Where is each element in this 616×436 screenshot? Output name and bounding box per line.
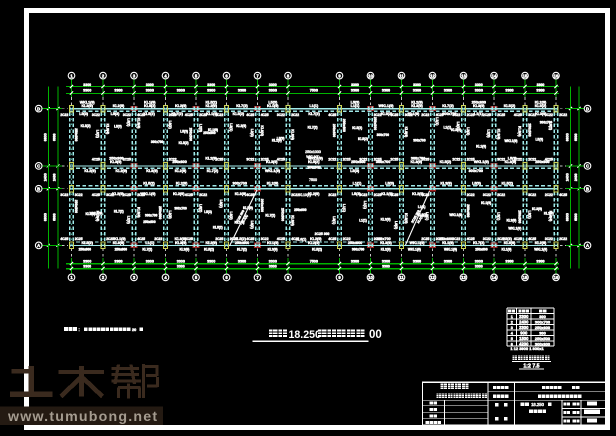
svg-text:6600: 6600 [53, 133, 57, 141]
svg-text:WKL1(9): WKL1(9) [474, 160, 490, 164]
svg-text:4C25: 4C25 [514, 237, 522, 241]
svg-text:3300: 3300 [177, 89, 185, 93]
svg-text:KL5(2): KL5(2) [440, 160, 452, 164]
svg-text:200x400: 200x400 [260, 199, 264, 212]
svg-text:4C25: 4C25 [60, 237, 68, 241]
svg-text:4C25: 4C25 [545, 157, 553, 161]
svg-text:250x500: 250x500 [528, 123, 532, 136]
svg-text:4C25: 4C25 [559, 193, 567, 197]
svg-text:L6(2): L6(2) [219, 200, 223, 208]
svg-text:KL5(2): KL5(2) [81, 241, 93, 245]
svg-text:3300: 3300 [519, 314, 529, 319]
svg-text:KL2(9): KL2(9) [116, 169, 128, 173]
svg-text:300x700: 300x700 [233, 181, 247, 185]
svg-text:3300: 3300 [269, 265, 277, 269]
svg-text:KL1(9): KL1(9) [144, 100, 156, 104]
svg-text:KL2(9): KL2(9) [535, 100, 547, 104]
svg-text:KL2(9): KL2(9) [267, 181, 279, 185]
svg-text:3300: 3300 [207, 260, 215, 264]
svg-text:KL5(2): KL5(2) [213, 226, 223, 230]
svg-text:2C22: 2C22 [215, 113, 223, 117]
svg-text:4C25: 4C25 [185, 113, 193, 117]
svg-text:300x700: 300x700 [413, 139, 426, 143]
svg-text:11: 11 [399, 73, 404, 78]
svg-text:L6(2): L6(2) [229, 212, 233, 220]
svg-text:2C22: 2C22 [497, 237, 505, 241]
svg-text:12: 12 [430, 73, 435, 78]
svg-text:WKL3(1): WKL3(1) [306, 155, 319, 159]
svg-text:L5(3): L5(3) [204, 210, 212, 214]
svg-text:2C25: 2C25 [390, 157, 398, 161]
svg-text:300x700: 300x700 [151, 140, 164, 144]
svg-text:300x600: 300x600 [307, 166, 320, 170]
svg-text:A: A [586, 243, 589, 248]
svg-text:300: 300 [539, 314, 546, 319]
svg-text:18.250: 18.250 [289, 329, 322, 341]
svg-text:C: C [586, 164, 589, 169]
svg-text:KL3(9): KL3(9) [235, 192, 247, 196]
svg-text:L5(3): L5(3) [351, 100, 361, 104]
svg-text:KL2(9): KL2(9) [544, 212, 554, 216]
svg-text:1 12 3900 1 800x1: 1 12 3900 1 800x1 [510, 346, 544, 351]
svg-text:KL2(9): KL2(9) [205, 104, 217, 108]
svg-text:4C25: 4C25 [246, 237, 254, 241]
svg-text:KL7(2): KL7(2) [142, 248, 152, 252]
svg-text:KL1(9): KL1(9) [476, 145, 486, 149]
svg-text:L2(3): L2(3) [250, 129, 254, 137]
svg-text:250x600: 250x600 [115, 248, 128, 252]
svg-text:3C22: 3C22 [483, 193, 491, 197]
svg-text:250x500: 250x500 [74, 200, 78, 213]
svg-text:4C25: 4C25 [185, 193, 193, 197]
svg-text:00: 00 [369, 329, 382, 341]
svg-text:KL1(9): KL1(9) [442, 241, 454, 245]
svg-text:KL5(2): KL5(2) [205, 100, 217, 104]
svg-text:2C25: 2C25 [483, 113, 491, 117]
svg-text:2C22: 2C22 [514, 157, 522, 161]
svg-text:L1(1): L1(1) [145, 241, 155, 245]
svg-text:250x500: 250x500 [373, 117, 377, 130]
svg-text:D: D [586, 106, 589, 111]
svg-text:3300: 3300 [505, 89, 513, 93]
svg-text:WKL1(9): WKL1(9) [80, 100, 96, 104]
svg-text:3300: 3300 [413, 260, 421, 264]
svg-text:3300: 3300 [505, 260, 513, 264]
svg-text:2C22: 2C22 [559, 113, 567, 117]
svg-text:A: A [37, 243, 40, 248]
svg-text:KL2(9): KL2(9) [272, 139, 282, 143]
svg-text:3300: 3300 [351, 83, 359, 87]
svg-text:L1(1): L1(1) [353, 181, 363, 185]
svg-text:300x700: 300x700 [469, 169, 483, 173]
svg-text:900: 900 [520, 331, 528, 336]
svg-text:15: 15 [523, 73, 528, 78]
svg-text:WKL1(9): WKL1(9) [379, 104, 395, 108]
svg-text:250x600: 250x600 [143, 220, 156, 224]
svg-text:KL5(2): KL5(2) [204, 248, 214, 252]
svg-text:3C22: 3C22 [92, 113, 100, 117]
svg-text:C: C [37, 164, 40, 169]
svg-text:250x600: 250x600 [203, 131, 216, 135]
svg-text:3300: 3300 [475, 89, 483, 93]
svg-text:3300: 3300 [519, 325, 529, 330]
svg-text:WKL1(9): WKL1(9) [265, 169, 281, 173]
svg-text:4C25: 4C25 [246, 113, 254, 117]
svg-text:3300: 3300 [269, 89, 277, 93]
svg-text:3C22: 3C22 [60, 193, 68, 197]
svg-text:4C25: 4C25 [137, 237, 145, 241]
svg-text:L1(1): L1(1) [363, 201, 367, 209]
svg-text:3C22: 3C22 [528, 113, 536, 117]
svg-text:250x500: 250x500 [281, 208, 285, 221]
svg-text:300x700: 300x700 [540, 121, 553, 125]
svg-text:L6(2): L6(2) [199, 204, 203, 212]
svg-text:KL2(9): KL2(9) [411, 100, 423, 104]
svg-text:14: 14 [492, 73, 497, 78]
svg-text:3300: 3300 [413, 83, 421, 87]
svg-text:2C22: 2C22 [60, 113, 68, 117]
svg-text:6600: 6600 [566, 133, 570, 141]
svg-text:6900: 6900 [566, 213, 570, 221]
svg-text:4C25: 4C25 [246, 193, 254, 197]
svg-text:KL7(2): KL7(2) [236, 104, 248, 108]
svg-text:3C22: 3C22 [359, 157, 367, 161]
svg-text:KL8(4): KL8(4) [291, 129, 295, 140]
svg-text:3C22: 3C22 [497, 157, 505, 161]
svg-text:L6(2): L6(2) [96, 130, 100, 138]
svg-text:300: 300 [539, 331, 546, 336]
svg-text:4C25: 4C25 [421, 193, 429, 197]
svg-text:250x500: 250x500 [518, 210, 522, 223]
svg-text:2C22: 2C22 [497, 193, 505, 197]
svg-text:3300: 3300 [382, 265, 390, 269]
svg-text:KL5(2): KL5(2) [504, 104, 516, 108]
svg-text:16: 16 [554, 275, 559, 280]
svg-text:2C25: 2C25 [215, 237, 223, 241]
svg-text:2C25: 2C25 [421, 157, 429, 161]
svg-text:3C22: 3C22 [483, 237, 491, 241]
svg-text:3C22: 3C22 [545, 237, 553, 241]
svg-text:2C22: 2C22 [199, 193, 207, 197]
svg-text:KL9(4): KL9(4) [137, 207, 141, 218]
svg-text:KL3(9): KL3(9) [506, 219, 516, 223]
svg-text:3C22: 3C22 [106, 193, 114, 197]
svg-text:2: 2 [511, 321, 513, 325]
svg-text:L5(3): L5(3) [385, 181, 395, 185]
svg-text:250x600: 250x600 [348, 241, 362, 245]
svg-text:KL3(9): KL3(9) [113, 241, 125, 245]
svg-text:18.250: 18.250 [531, 402, 544, 407]
svg-text:3C22: 3C22 [405, 113, 413, 117]
svg-text:3300: 3300 [537, 83, 545, 87]
svg-text:3C22: 3C22 [261, 237, 269, 241]
svg-text:KL3(9): KL3(9) [175, 241, 187, 245]
svg-text:2400: 2400 [574, 173, 578, 181]
svg-text:2C22: 2C22 [374, 237, 382, 241]
svg-text:KL3(9): KL3(9) [532, 207, 542, 211]
svg-text:2C25: 2C25 [199, 113, 207, 117]
svg-text:250x600: 250x600 [475, 248, 488, 252]
svg-text:2C25: 2C25 [169, 113, 177, 117]
svg-text:2400: 2400 [53, 173, 57, 181]
svg-text:KL2(9): KL2(9) [84, 169, 96, 173]
svg-text:3C22: 3C22 [452, 113, 460, 117]
svg-text:3300: 3300 [83, 260, 91, 264]
svg-text:2C25: 2C25 [374, 193, 382, 197]
svg-text:L5(3): L5(3) [535, 137, 543, 141]
svg-text:KL5(2): KL5(2) [417, 213, 427, 217]
svg-text:L1(1): L1(1) [309, 104, 319, 108]
svg-text:3300: 3300 [114, 89, 122, 93]
svg-text:4C25: 4C25 [390, 193, 398, 197]
svg-text:KL5(2): KL5(2) [81, 124, 91, 128]
svg-text:KL7(2): KL7(2) [265, 214, 275, 218]
svg-text:14: 14 [492, 275, 497, 280]
svg-text:300x700: 300x700 [377, 133, 390, 137]
svg-text:KL9(4): KL9(4) [106, 124, 110, 135]
svg-text:KL5(2): KL5(2) [233, 112, 245, 116]
svg-text:L1(1): L1(1) [342, 204, 346, 212]
svg-text:4C25: 4C25 [261, 113, 269, 117]
svg-text:3300: 3300 [207, 89, 215, 93]
svg-text:2C22: 2C22 [545, 193, 553, 197]
svg-text:KL1(9): KL1(9) [481, 201, 491, 205]
svg-text:3300: 3300 [351, 260, 359, 264]
svg-text:WKL1(9): WKL1(9) [505, 139, 518, 143]
svg-text:L1(1): L1(1) [418, 205, 426, 209]
svg-text:3C22: 3C22 [545, 113, 553, 117]
svg-text:KL7(2): KL7(2) [207, 169, 219, 173]
svg-text:L6(2): L6(2) [168, 121, 172, 129]
svg-text:3300: 3300 [83, 89, 91, 93]
svg-text:15: 15 [523, 275, 528, 280]
svg-text:250x600: 250x600 [109, 156, 123, 160]
svg-text:2C25: 2C25 [374, 157, 382, 161]
svg-text:KL1(9): KL1(9) [267, 104, 279, 108]
svg-text:12: 12 [430, 275, 435, 280]
svg-text:2400: 2400 [566, 173, 570, 181]
svg-text:2C22: 2C22 [328, 193, 336, 197]
svg-text:1:2 7.5: 1:2 7.5 [523, 363, 539, 369]
svg-text:KL3(9): KL3(9) [380, 241, 392, 245]
svg-text:KL7(2): KL7(2) [308, 112, 320, 116]
svg-text:KL7(2): KL7(2) [308, 126, 318, 130]
svg-text:3300: 3300 [177, 260, 185, 264]
svg-text:300x700: 300x700 [174, 206, 187, 210]
svg-text:KL2(9): KL2(9) [310, 237, 322, 241]
svg-text:7500: 7500 [309, 178, 317, 182]
svg-text:L3(1): L3(1) [229, 123, 233, 131]
svg-text:KL2(9): KL2(9) [113, 104, 125, 108]
svg-text:3300: 3300 [475, 83, 483, 87]
svg-text:2C22: 2C22 [421, 113, 429, 117]
svg-text:7500: 7500 [310, 89, 318, 93]
svg-text:WKL1(9): WKL1(9) [408, 248, 421, 252]
svg-text:4C25: 4C25 [92, 193, 100, 197]
svg-text:3: 3 [511, 326, 513, 330]
svg-text:L3(1): L3(1) [332, 216, 336, 224]
svg-text:20: 20 [132, 328, 136, 332]
svg-text:KL1(9): KL1(9) [267, 241, 279, 245]
svg-text:2C25: 2C25 [123, 193, 131, 197]
svg-text:KL5(2): KL5(2) [358, 137, 368, 141]
svg-text:2C25: 2C25 [123, 157, 131, 161]
svg-text:KL7(2): KL7(2) [237, 248, 247, 252]
svg-text:KL5(2): KL5(2) [144, 104, 156, 108]
svg-text:KL1(9): KL1(9) [502, 248, 512, 252]
svg-text:KL5(2): KL5(2) [179, 141, 189, 145]
svg-text:2C22: 2C22 [328, 157, 336, 161]
svg-text:D: D [37, 106, 40, 111]
svg-text:6900: 6900 [44, 213, 48, 221]
svg-text:KL3(9): KL3(9) [440, 181, 452, 185]
svg-text:3300: 3300 [146, 89, 154, 93]
svg-text:4C25: 4C25 [528, 237, 536, 241]
svg-text:3300: 3300 [382, 260, 390, 264]
svg-text:250x600: 250x600 [535, 325, 550, 330]
svg-text:3300: 3300 [146, 83, 154, 87]
svg-text:2C25: 2C25 [215, 157, 223, 161]
svg-text:2C22: 2C22 [436, 237, 444, 241]
svg-text:2C25: 2C25 [467, 113, 475, 117]
svg-text:2C22: 2C22 [291, 193, 299, 197]
svg-text:KL7(2): KL7(2) [473, 241, 485, 245]
svg-text:KL8(4): KL8(4) [404, 213, 408, 224]
svg-text:2C25: 2C25 [343, 157, 351, 161]
svg-text:2400: 2400 [44, 173, 48, 181]
svg-text:L6(2): L6(2) [127, 118, 131, 126]
svg-text:2C22: 2C22 [169, 157, 177, 161]
svg-text:2C25: 2C25 [421, 237, 429, 241]
svg-text:KL3(9): KL3(9) [411, 104, 423, 108]
svg-text:6900: 6900 [53, 213, 57, 221]
svg-text:3300: 3300 [269, 83, 277, 87]
svg-text:4C25: 4C25 [277, 237, 285, 241]
svg-text:3300: 3300 [444, 89, 452, 93]
svg-text:3300: 3300 [413, 89, 421, 93]
svg-text:KL5(2): KL5(2) [312, 248, 322, 252]
svg-text:4C25: 4C25 [92, 157, 100, 161]
svg-text:L5(3): L5(3) [111, 112, 121, 116]
svg-text:4C25: 4C25 [514, 113, 522, 117]
svg-text:KL1(9): KL1(9) [235, 220, 245, 224]
svg-text:KL7(2): KL7(2) [442, 104, 454, 108]
svg-text:300x700: 300x700 [145, 214, 158, 218]
svg-text:KL3(9): KL3(9) [81, 104, 93, 108]
svg-text:L5(3): L5(3) [268, 100, 278, 104]
svg-text:250x600: 250x600 [235, 241, 249, 245]
svg-text:WKL1(9): WKL1(9) [449, 213, 462, 217]
svg-text:10: 10 [368, 275, 373, 280]
svg-text:4C25: 4C25 [390, 113, 398, 117]
svg-text:6600: 6600 [574, 133, 578, 141]
svg-text:3C22: 3C22 [246, 157, 254, 161]
svg-text:4C25: 4C25 [185, 237, 193, 241]
svg-text:3C22: 3C22 [528, 193, 536, 197]
svg-text:3300: 3300 [177, 265, 185, 269]
svg-text:3300: 3300 [351, 89, 359, 93]
svg-text:B: B [586, 186, 589, 191]
svg-text:KL5(2): KL5(2) [535, 104, 547, 108]
svg-text:5: 5 [511, 337, 513, 341]
svg-text:4C25: 4C25 [137, 113, 145, 117]
svg-text:2C25: 2C25 [137, 193, 145, 197]
svg-text:KL8(4): KL8(4) [291, 215, 295, 226]
svg-text:3300: 3300 [475, 260, 483, 264]
svg-text:KL2(9): KL2(9) [308, 241, 320, 245]
svg-text:KL3(9): KL3(9) [504, 241, 516, 245]
svg-text:3C22: 3C22 [359, 193, 367, 197]
svg-text:KL3(9): KL3(9) [268, 248, 278, 252]
svg-text:3300: 3300 [83, 265, 91, 269]
svg-text:2C22: 2C22 [291, 113, 299, 117]
svg-text:KL2(9): KL2(9) [176, 181, 188, 185]
svg-text:4C25: 4C25 [467, 237, 475, 241]
svg-text:L6(2): L6(2) [394, 221, 398, 229]
svg-text:3C22: 3C22 [374, 113, 382, 117]
svg-text:KL5(2): KL5(2) [143, 181, 155, 185]
svg-text:2C22: 2C22 [154, 237, 162, 241]
svg-text:6600: 6600 [44, 133, 48, 141]
svg-text:KL3(9): KL3(9) [381, 218, 391, 222]
svg-text:6900: 6900 [574, 213, 578, 221]
svg-text:2C25: 2C25 [261, 157, 269, 161]
svg-text:KL5(2): KL5(2) [451, 128, 461, 132]
svg-text:L5(3): L5(3) [114, 124, 122, 128]
svg-text:L2(3): L2(3) [199, 124, 203, 132]
svg-text:KL5(2): KL5(2) [502, 181, 514, 185]
svg-text:2C22: 2C22 [528, 157, 536, 161]
svg-text:1500: 1500 [519, 336, 529, 341]
svg-text:3300: 3300 [238, 260, 246, 264]
svg-text:KL9(4): KL9(4) [518, 126, 522, 137]
svg-text:2C25: 2C25 [230, 237, 238, 241]
svg-text:250x600: 250x600 [472, 100, 486, 104]
svg-text:2C22: 2C22 [343, 237, 351, 241]
svg-text:250x500: 250x500 [158, 206, 162, 219]
svg-text:200x400: 200x400 [342, 119, 346, 132]
svg-text:2C22: 2C22 [467, 193, 475, 197]
svg-text:L5(3): L5(3) [472, 181, 482, 185]
svg-text:300x700: 300x700 [352, 248, 365, 252]
svg-text:3300: 3300 [269, 260, 277, 264]
svg-text:4C25: 4C25 [328, 237, 336, 241]
svg-text:250x500: 250x500 [535, 336, 550, 341]
svg-text:KL9(4): KL9(4) [137, 118, 141, 129]
svg-text:WKL1(9): WKL1(9) [508, 226, 521, 230]
svg-text:2C25: 2C25 [106, 237, 114, 241]
svg-text:3300: 3300 [536, 89, 544, 93]
svg-text:WKL1(9): WKL1(9) [444, 248, 457, 252]
svg-text:WKL1(9): WKL1(9) [534, 248, 547, 252]
svg-text:L1(1): L1(1) [435, 117, 439, 125]
svg-text:KL10(1): KL10(1) [299, 193, 311, 197]
svg-text:3C22: 3C22 [75, 193, 83, 197]
svg-text:3300: 3300 [536, 260, 544, 264]
svg-text:L2(3): L2(3) [127, 216, 131, 224]
svg-text:3300: 3300 [382, 89, 390, 93]
svg-text:L1(1): L1(1) [359, 219, 367, 223]
svg-text:250x600: 250x600 [294, 208, 307, 212]
svg-text:4C25: 4C25 [436, 113, 444, 117]
svg-text:2400: 2400 [519, 320, 529, 325]
svg-text:L1(1): L1(1) [351, 104, 361, 108]
svg-text:16: 16 [554, 73, 559, 78]
svg-text:250x1000: 250x1000 [305, 150, 321, 154]
svg-text:KL3(9): KL3(9) [473, 104, 485, 108]
svg-text:B: B [37, 186, 40, 191]
svg-text:3C22: 3C22 [123, 113, 131, 117]
